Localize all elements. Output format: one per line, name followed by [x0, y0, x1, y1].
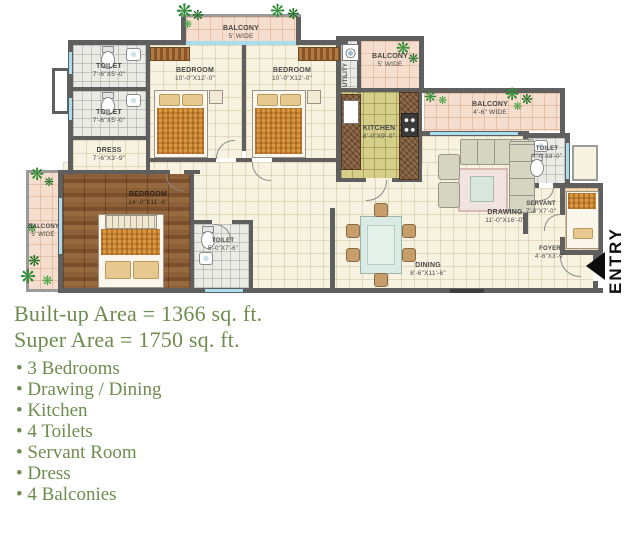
bedroom-master-label: BEDROOM 14'-0"X11'-6" [98, 190, 198, 208]
pillow-icon [568, 193, 596, 209]
floor-plan-page: ❋ ❋ ❋ ❋ ❋ ❋ ❋ ❋ ❋ ❋ ❋ ❋ ❋ ❋ ❋ ❋ ❋ ❋ BALC… [0, 0, 636, 547]
summary-block: Built-up Area = 1366 sq. ft. Super Area … [14, 301, 262, 505]
bed-icon [98, 214, 164, 288]
wall [523, 133, 570, 138]
pillow-icon [182, 94, 203, 106]
nightstand-icon [209, 90, 223, 104]
toilet-icon [530, 159, 544, 177]
bed-icon [252, 90, 306, 158]
wall [330, 208, 335, 291]
plant-icon: ❋ [270, 2, 285, 20]
armchair-icon [438, 182, 460, 208]
sink-icon [199, 252, 213, 265]
chair-icon [402, 248, 416, 262]
window [205, 289, 243, 292]
wall [419, 36, 424, 93]
pillow-icon [280, 94, 301, 106]
plant-icon: ❋ [287, 7, 300, 22]
entry-label: ENTRY [606, 228, 626, 294]
wall [553, 183, 570, 188]
window-ledge [572, 145, 598, 181]
wall [272, 158, 346, 162]
feature-item: Servant Room [16, 442, 262, 463]
feature-item: Dress [16, 463, 262, 484]
wall [242, 45, 246, 151]
plant-icon: ❋ [20, 268, 36, 287]
plant-icon: ❋ [44, 176, 54, 188]
wardrobe-icon [150, 47, 190, 61]
plant-icon: ❋ [42, 274, 53, 287]
servant-label: SERVANT 7'-0"X7'-0" [518, 201, 564, 217]
wall [190, 170, 194, 292]
built-up-area-text: Built-up Area = 1366 sq. ft. [14, 301, 262, 327]
plant-icon: ❋ [192, 8, 204, 22]
sink-icon [126, 94, 141, 107]
balcony-rail [26, 289, 60, 292]
kitchen-label: KITCHEN 8'-0"X9'-0" [341, 124, 417, 142]
window [69, 98, 72, 120]
wall [419, 88, 565, 93]
coffee-table-icon [470, 176, 494, 202]
pillow-icon [257, 94, 278, 106]
toilet-2-label: TOILET 7'-6"X5'-0" [76, 108, 142, 126]
pillow-icon [105, 261, 131, 279]
blanket-icon [101, 229, 160, 255]
toilet-master-label: TOILET 5'-0"X7'-6" [197, 238, 249, 254]
wall [336, 178, 366, 182]
chair-icon [346, 248, 360, 262]
wardrobe-icon [298, 47, 340, 61]
blanket-icon [255, 108, 302, 154]
wall [236, 158, 252, 162]
plant-icon: ❋ [30, 166, 44, 183]
wall [68, 40, 186, 45]
washing-machine-icon [342, 44, 359, 61]
window [69, 52, 72, 74]
entry-arrow-icon [586, 252, 605, 280]
pillow-icon [159, 94, 180, 106]
dining-label: DINING 8'-6"X11'-6" [386, 261, 470, 279]
wall-niche [52, 68, 70, 114]
wall [194, 220, 212, 224]
balcony-top-label: BALCONY 5' WIDE [186, 24, 296, 42]
utility-label: UTILITY [343, 60, 351, 90]
nightstand-icon [307, 90, 321, 104]
wall [249, 220, 253, 290]
chair-icon [346, 224, 360, 238]
armchair-icon [438, 154, 460, 180]
bed-icon [566, 191, 599, 249]
feature-item: 4 Toilets [16, 421, 262, 442]
threshold [450, 289, 484, 293]
window [430, 132, 518, 135]
wall [68, 87, 150, 91]
wall [146, 158, 216, 162]
kitchen-sink-icon [343, 100, 359, 124]
super-area-text: Super Area = 1750 sq. ft. [14, 327, 262, 353]
feature-item: Kitchen [16, 400, 262, 421]
foyer-label: FOYER 4'-6"X3'-9" [524, 246, 576, 262]
wall [560, 88, 565, 138]
balcony-left-label: BALCONY 5' WIDE [28, 224, 58, 240]
balcony-rear-label: BALCONY 4'-6" WIDE [430, 100, 550, 118]
feature-item: Drawing / Dining [16, 379, 262, 400]
wall [336, 36, 424, 41]
window [186, 41, 296, 45]
wall [68, 136, 150, 140]
chair-icon [374, 203, 388, 217]
bedroom-1-label: BEDROOM 10'-0"X12'-0" [150, 66, 240, 84]
wall [146, 45, 150, 175]
dress-label: DRESS 7'-6"X3'-9" [76, 146, 142, 164]
headboard-icon [105, 215, 157, 229]
sink-icon [126, 48, 141, 61]
chair-icon [402, 224, 416, 238]
feature-item: 4 Balconies [16, 484, 262, 505]
pillow-icon [573, 228, 593, 239]
wall [523, 288, 603, 293]
dining-table-top [367, 225, 395, 265]
toilet-3-label: TOILET 4'-0"X8'-0" [526, 146, 568, 162]
toilet-1-label: TOILET 7'-6"X5'-0" [76, 62, 142, 80]
window [59, 198, 62, 254]
pillow-icon [133, 261, 159, 279]
bedroom-2-label: BEDROOM 10'-0"X12'-0" [248, 66, 336, 84]
wall [58, 170, 170, 174]
bed-icon [154, 90, 208, 158]
blanket-icon [157, 108, 204, 154]
balcony-service-label: BALCONY 5' WIDE [361, 52, 419, 70]
feature-list: 3 Bedrooms Drawing / Dining Kitchen 4 To… [16, 358, 262, 505]
feature-item: 3 Bedrooms [16, 358, 262, 379]
